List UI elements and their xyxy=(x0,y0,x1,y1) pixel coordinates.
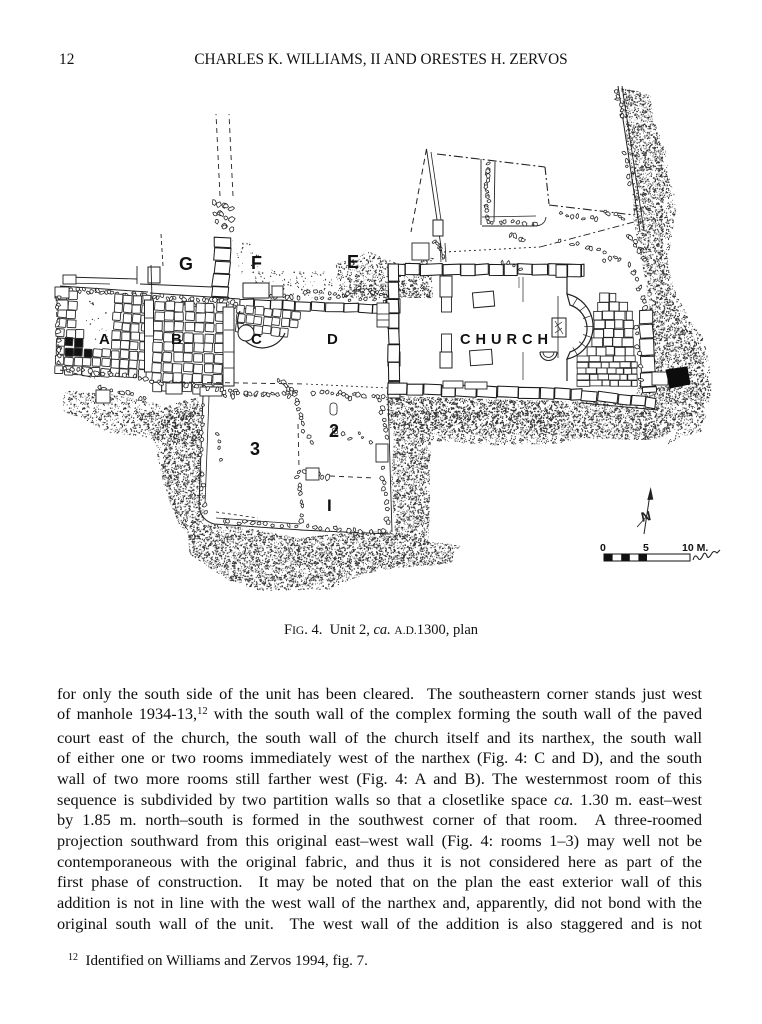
svg-text:C H U R C H: C H U R C H xyxy=(460,332,548,348)
svg-text:E: E xyxy=(347,252,359,272)
svg-text:A: A xyxy=(99,331,110,348)
svg-text:I: I xyxy=(327,496,332,515)
svg-text:G: G xyxy=(179,254,193,274)
svg-text:2: 2 xyxy=(329,421,339,441)
svg-text:5: 5 xyxy=(643,542,649,554)
svg-text:10 M.: 10 M. xyxy=(682,542,708,554)
svg-text:D: D xyxy=(327,331,338,348)
svg-text:3: 3 xyxy=(250,439,260,459)
svg-text:B: B xyxy=(171,331,182,348)
svg-text:F: F xyxy=(251,253,262,273)
svg-text:C: C xyxy=(251,331,262,348)
svg-text:0: 0 xyxy=(600,542,606,554)
